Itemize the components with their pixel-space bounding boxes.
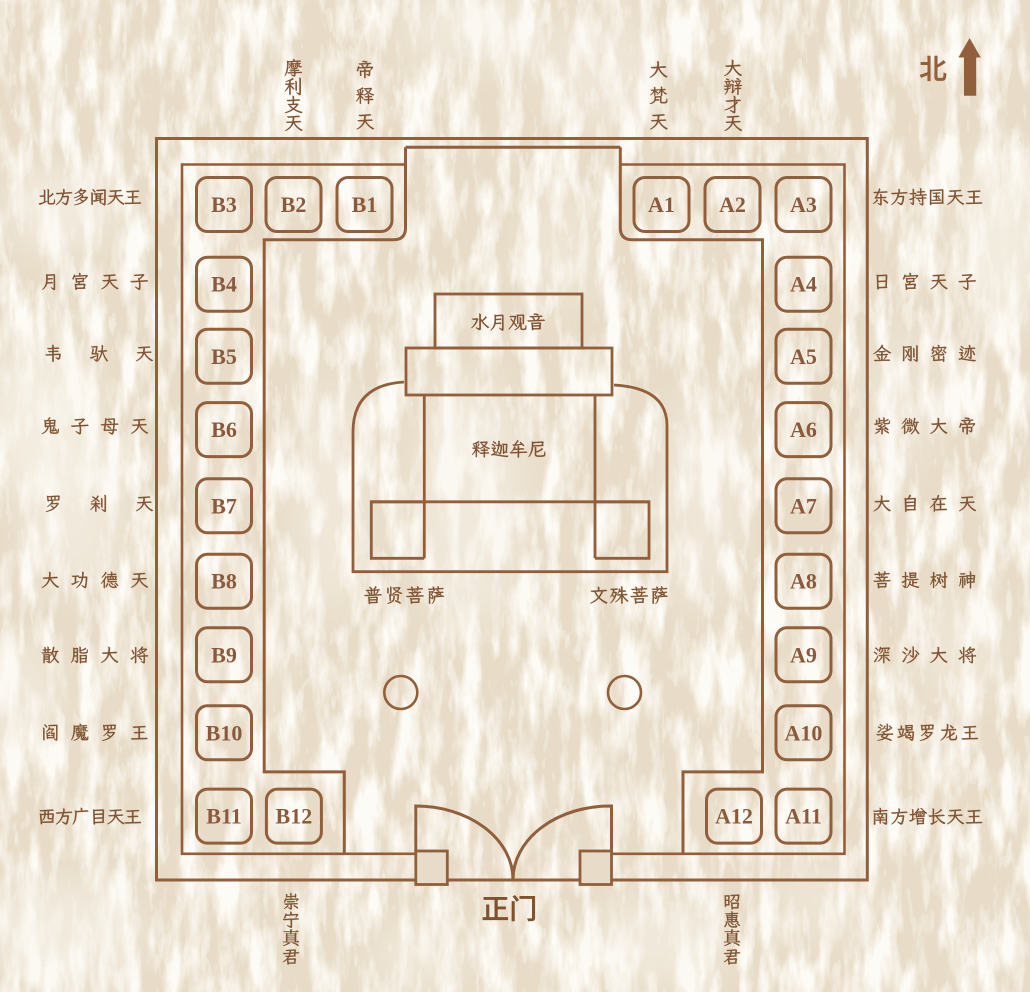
svg-text:A4: A4 bbox=[790, 272, 817, 297]
svg-text:A11: A11 bbox=[785, 804, 822, 829]
svg-text:B11: B11 bbox=[206, 804, 241, 829]
svg-text:B7: B7 bbox=[211, 493, 237, 518]
svg-text:A12: A12 bbox=[715, 804, 753, 829]
svg-text:B5: B5 bbox=[211, 344, 237, 369]
svg-text:B1: B1 bbox=[352, 192, 378, 217]
svg-text:B6: B6 bbox=[211, 417, 237, 442]
svg-text:B9: B9 bbox=[211, 642, 237, 667]
svg-text:A1: A1 bbox=[648, 192, 675, 217]
svg-text:A8: A8 bbox=[790, 569, 817, 594]
svg-text:A7: A7 bbox=[790, 493, 817, 518]
svg-text:A10: A10 bbox=[785, 720, 823, 745]
svg-text:A6: A6 bbox=[790, 417, 817, 442]
svg-text:B3: B3 bbox=[211, 192, 237, 217]
svg-text:A3: A3 bbox=[790, 192, 817, 217]
svg-text:B12: B12 bbox=[276, 804, 313, 829]
svg-text:A9: A9 bbox=[790, 642, 817, 667]
svg-text:B2: B2 bbox=[281, 192, 307, 217]
svg-text:B4: B4 bbox=[211, 272, 237, 297]
svg-text:A2: A2 bbox=[719, 192, 746, 217]
svg-text:A5: A5 bbox=[790, 344, 817, 369]
svg-text:B8: B8 bbox=[211, 569, 237, 594]
svg-text:B10: B10 bbox=[206, 720, 243, 745]
